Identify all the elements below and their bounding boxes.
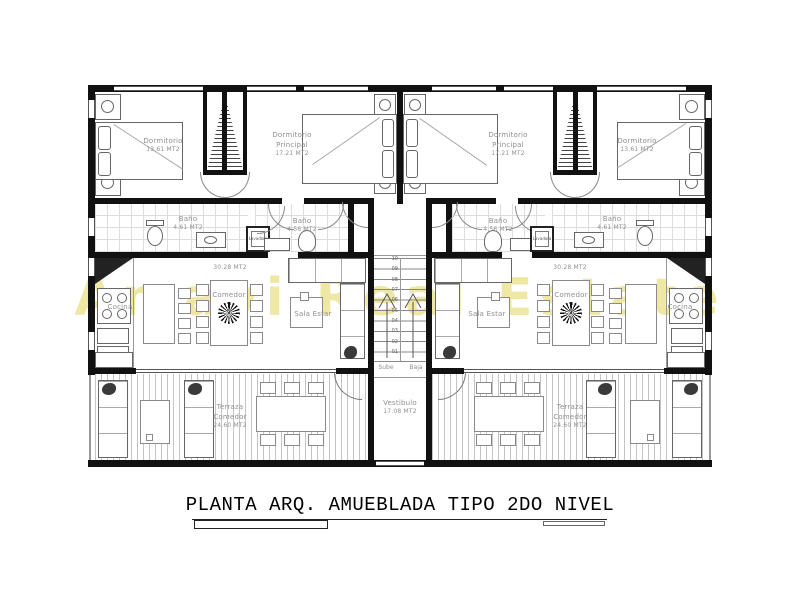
room-area: 24.60 MT2 [200,422,260,431]
room-label-bano-a-left: Baño 4.61 MT2 [158,214,218,233]
window [88,258,95,276]
stair-step-number: 03 [386,328,398,334]
title-bar-right [543,521,605,526]
room-area: 4.61 MT2 [158,224,218,233]
pillow [382,119,394,147]
pillow [689,126,702,150]
kitchen-counter [95,352,133,368]
stair-step-number: 08 [386,277,398,283]
stool [178,318,191,329]
room-area: 4.61 MT2 [582,224,642,233]
room-area: 4.56 MT2 [468,226,528,235]
lamp-icon [685,100,698,113]
room-label-dormitorio-left: Dormitorio 13.61 MT2 [118,136,208,155]
stool [178,333,191,344]
window [705,218,712,236]
side-table-icon [300,292,309,301]
room-name: Baño [272,216,332,226]
stool [178,288,191,299]
stair-step-number: 05 [386,308,398,314]
pillow [98,126,111,150]
lamp-icon [379,99,391,111]
kitchen-counter [667,352,705,368]
stair-step-number: 06 [386,297,398,303]
dining-chair [591,316,604,328]
dining-chair [250,316,263,328]
entry-door [376,461,424,466]
plan-title: PLANTA ARQ. AMUEBLADA TIPO 2DO NIVEL [0,494,800,516]
washer-label: Lavadora [532,236,552,241]
terrace-chair [476,382,492,394]
sink [264,238,290,251]
room-name: Vestibulo [370,398,430,408]
window [504,86,553,91]
room-name: Sala Estar [452,309,522,319]
shaft-wall [222,92,227,172]
room-area: 17.21 MT2 [468,150,548,159]
room-label-dormitorio-principal-right: Dormitorio Principal 17.21 MT2 [468,130,548,159]
stair-step-number: 02 [386,339,398,345]
stool [178,303,191,314]
terrace-edge-right [709,375,711,460]
room-name: Principal [252,140,332,150]
washer-box: Lavadora [530,226,554,252]
sink-basin [204,236,217,244]
terrace-chair [500,382,516,394]
room-name: Sala Estar [278,309,348,319]
coffee-table-icon [146,434,153,441]
room-label-cocina-right: Cocina [658,302,702,312]
room-label-comedor-left: Comedor [205,290,253,300]
dining-chair [537,300,550,312]
stair-step-number: 10 [386,256,398,262]
terrace-edge-left [89,375,91,460]
stair-label-sube: Sube [374,364,398,371]
landing-arc [200,172,250,198]
dining-chair [196,316,209,328]
terrace-chair [284,434,300,446]
lamp-icon [101,100,114,113]
room-label-terraza-left: Terraza Comedor 24.60 MT2 [200,402,260,431]
landing-arc [550,172,600,198]
room-label-sala-right: Sala Estar [452,309,522,319]
room-name: Principal [468,140,548,150]
room-name: Baño [158,214,218,224]
stair-step-number: 09 [386,266,398,272]
kitchen-island [143,284,175,344]
wall [88,252,268,258]
floor-plan: Amavi Real Estate [0,0,800,600]
window [705,100,712,118]
stair-step-number: 04 [386,318,398,324]
stool [609,303,622,314]
sliding-door [464,369,664,373]
room-area: 30.28 MT2 [546,264,594,273]
room-area: 30.28 MT2 [206,264,254,273]
living-area-label-right: 30.28 MT2 [546,264,594,273]
shaft-wall [203,92,207,175]
window [247,86,296,91]
coffee-table [630,400,660,444]
terrace-chair [260,434,276,446]
terrace-chair [500,434,516,446]
living-area-label-left: 30.28 MT2 [206,264,254,273]
dining-chair [196,332,209,344]
terrace-chair [524,382,540,394]
kitchen-cabinet [671,328,703,344]
sofa [288,258,366,283]
stool [609,333,622,344]
room-name: Cocina [658,302,702,312]
stool [609,288,622,299]
table-centerpiece [560,302,582,324]
stair-step-number: 07 [386,287,398,293]
shaft-wall [553,92,557,175]
vestibulo-top-line [374,377,426,378]
room-label-sala-left: Sala Estar [278,309,348,319]
window [88,218,95,236]
stool [609,318,622,329]
room-name: Dormitorio [252,130,332,140]
terrace-dining-table [474,396,544,432]
terrace-chair [524,434,540,446]
terrace-chair [308,434,324,446]
room-label-dormitorio-right: Dormitorio 13.61 MT2 [592,136,682,155]
wall [532,252,712,258]
pillow [406,150,418,178]
room-area: 13.61 MT2 [118,146,208,155]
sliding-door [136,369,336,373]
room-name: Terraza [200,402,260,412]
dining-chair [250,332,263,344]
coffee-table [140,400,170,444]
sink-basin [582,236,595,244]
window [88,100,95,118]
room-label-dormitorio-principal-left: Dormitorio Principal 17.21 MT2 [252,130,332,159]
kitchen-cabinet [97,328,129,344]
room-name: Baño [582,214,642,224]
pillow [406,119,418,147]
terrace-chair [476,434,492,446]
table-centerpiece [218,302,240,324]
pillow [382,150,394,178]
room-area: 4.56 MT2 [272,226,332,235]
dining-chair [250,300,263,312]
room-name: Dormitorio [118,136,208,146]
room-name: Cocina [98,302,142,312]
room-label-cocina-left: Cocina [98,302,142,312]
terrace-dining-table [256,396,326,432]
window [304,86,368,91]
terrace-chair [284,382,300,394]
kitchen-island [625,284,657,344]
room-label-comedor-right: Comedor [547,290,595,300]
window [432,86,496,91]
dining-chair [591,300,604,312]
coffee-table-icon [647,434,654,441]
stair-top-line [374,255,426,256]
window [597,86,686,91]
room-label-bano-a-right: Baño 4.61 MT2 [582,214,642,233]
stair-arrows [374,258,426,362]
shaft-wall [243,92,247,175]
window [705,258,712,276]
window [114,86,203,91]
stair-step-number: 01 [386,349,398,355]
stair-label-baja: Baja [404,364,428,371]
shaft-wall [573,92,578,172]
room-name: Comedor [547,290,595,300]
terrace-chair [260,382,276,394]
room-area: 17.08 MT2 [370,408,430,417]
side-table-icon [491,292,500,301]
shaft-wall [593,92,597,175]
room-name: Comedor [200,412,260,422]
dining-chair [591,332,604,344]
terrace-chair [308,382,324,394]
dining-chair [537,332,550,344]
counter-line [133,258,134,368]
room-name: Dormitorio [592,136,682,146]
pillow [98,152,111,176]
room-label-vestibulo: Vestibulo 17.08 MT2 [370,398,430,417]
room-area: 17.21 MT2 [252,150,332,159]
window [705,332,712,350]
room-name: Dormitorio [468,130,548,140]
dining-chair [196,300,209,312]
sofa [434,258,512,283]
title-bar [194,520,328,529]
room-label-bano-b-left: Baño 4.56 MT2 [272,216,332,235]
window [88,332,95,350]
room-name: Comedor [205,290,253,300]
dining-chair [537,316,550,328]
lamp-icon [409,99,421,111]
room-area: 13.61 MT2 [592,146,682,155]
pillow [689,152,702,176]
